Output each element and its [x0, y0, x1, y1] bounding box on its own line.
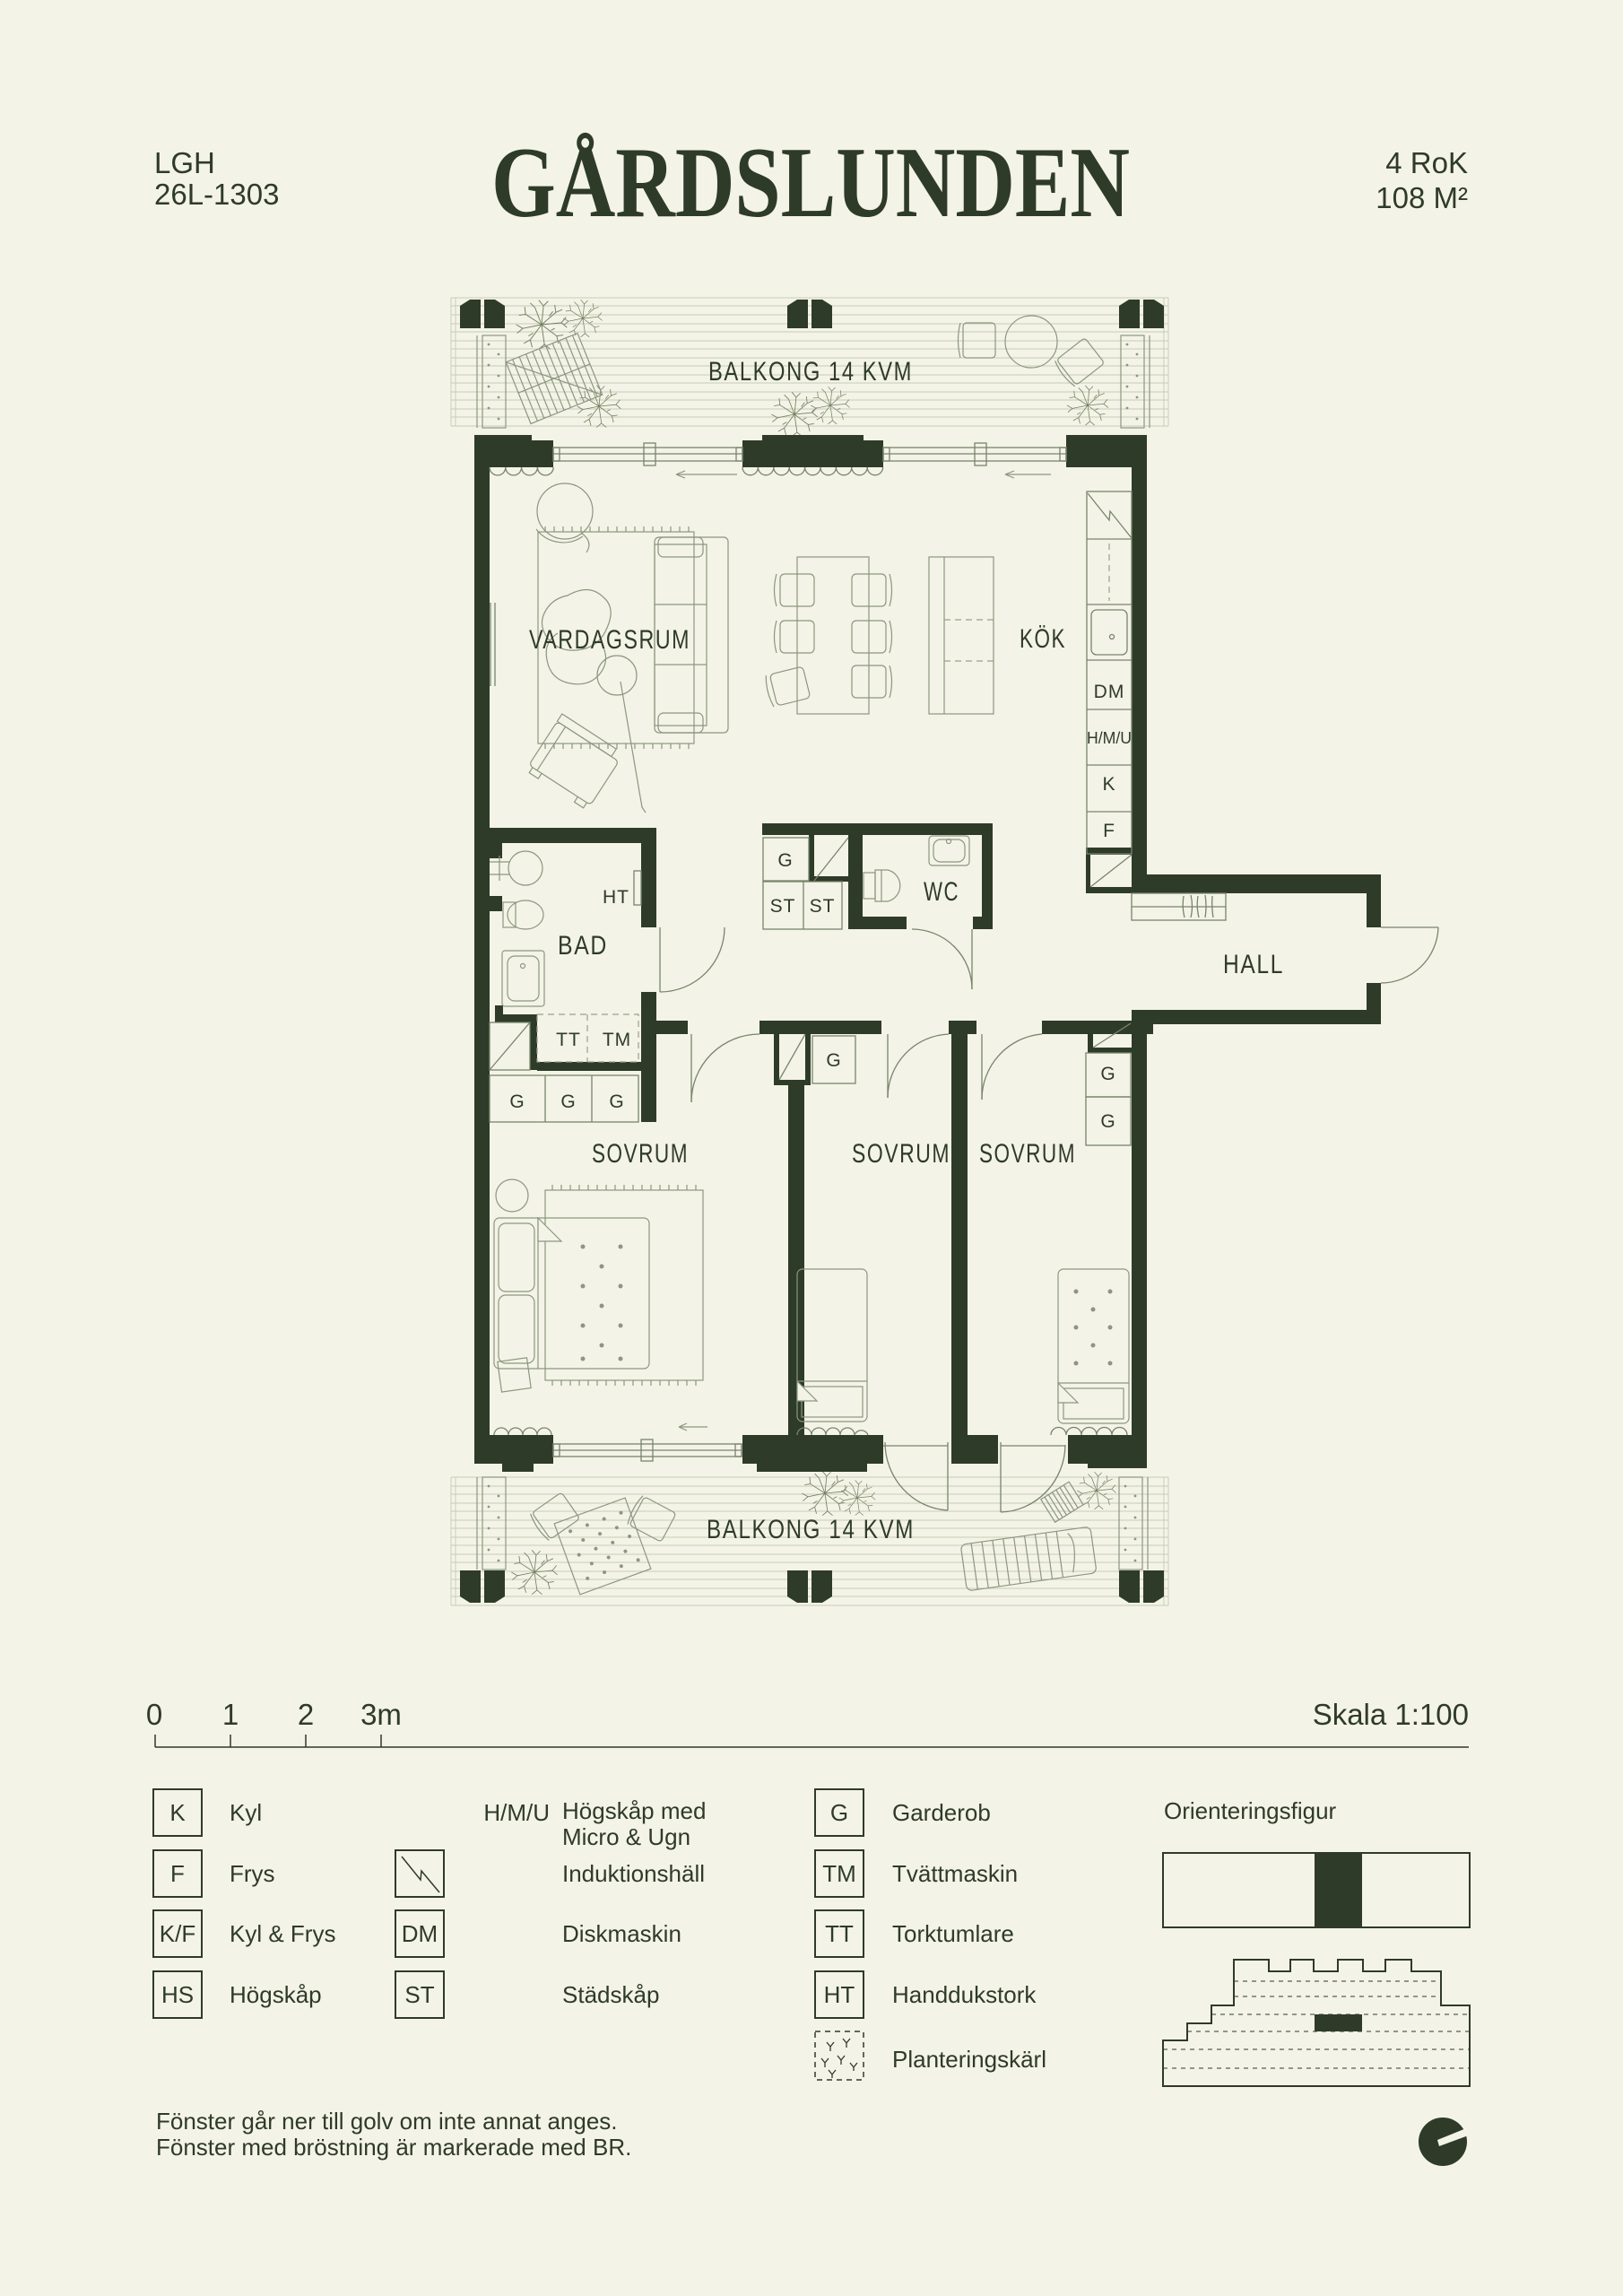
svg-text:DM: DM	[402, 1920, 438, 1947]
svg-text:G: G	[826, 1050, 841, 1071]
svg-text:26L-1303: 26L-1303	[154, 178, 279, 211]
svg-text:TM: TM	[603, 1030, 631, 1050]
svg-text:DM: DM	[1094, 682, 1125, 702]
svg-text:WC: WC	[924, 877, 959, 907]
svg-text:H/M/U: H/M/U	[1087, 729, 1132, 747]
svg-text:Skala 1:100: Skala 1:100	[1313, 1698, 1469, 1731]
svg-text:K/F: K/F	[160, 1920, 195, 1947]
svg-text:KÖK: KÖK	[1020, 624, 1066, 654]
svg-text:1: 1	[222, 1698, 239, 1731]
svg-text:G: G	[560, 1091, 576, 1112]
svg-text:LGH: LGH	[154, 146, 215, 179]
svg-text:K: K	[169, 1799, 186, 1826]
svg-text:G: G	[509, 1091, 525, 1112]
svg-text:HT: HT	[824, 1981, 855, 2008]
svg-text:ST: ST	[810, 896, 836, 917]
svg-text:Städskåp: Städskåp	[562, 1981, 659, 2008]
svg-text:Torktumlare: Torktumlare	[892, 1920, 1014, 1947]
svg-text:TM: TM	[822, 1860, 856, 1887]
svg-text:F: F	[1103, 821, 1115, 841]
svg-text:VARDAGSRUM: VARDAGSRUM	[529, 625, 690, 655]
svg-text:HALL: HALL	[1223, 950, 1284, 979]
svg-text:Kyl: Kyl	[230, 1799, 262, 1826]
svg-text:Tvättmaskin: Tvättmaskin	[892, 1860, 1018, 1887]
svg-text:Fönster går ner till golv om i: Fönster går ner till golv om inte annat …	[156, 2108, 618, 2135]
svg-text:3m: 3m	[360, 1698, 402, 1731]
svg-text:0: 0	[146, 1698, 162, 1731]
svg-text:G: G	[1100, 1064, 1115, 1084]
svg-text:Högskåp med: Högskåp med	[562, 1797, 706, 1824]
svg-text:Frys: Frys	[230, 1860, 275, 1887]
svg-text:TT: TT	[556, 1030, 581, 1050]
svg-text:SOVRUM: SOVRUM	[979, 1139, 1076, 1169]
svg-text:Handdukstork: Handdukstork	[892, 1981, 1037, 2008]
svg-text:Diskmaskin: Diskmaskin	[562, 1920, 681, 1947]
svg-text:TT: TT	[825, 1920, 854, 1947]
svg-text:H/M/U: H/M/U	[483, 1799, 550, 1826]
svg-text:SOVRUM: SOVRUM	[592, 1139, 689, 1169]
svg-text:HS: HS	[161, 1981, 194, 2008]
svg-text:2: 2	[298, 1698, 314, 1731]
svg-text:G: G	[609, 1091, 624, 1112]
svg-text:G: G	[777, 850, 793, 871]
svg-text:BALKONG 14 KVM: BALKONG 14 KVM	[707, 1515, 915, 1544]
svg-text:ST: ST	[770, 896, 796, 917]
svg-text:Orienteringsfigur: Orienteringsfigur	[1164, 1797, 1337, 1824]
svg-text:Induktionshäll: Induktionshäll	[562, 1860, 705, 1887]
svg-text:Högskåp: Högskåp	[230, 1981, 322, 2008]
svg-text:ST: ST	[404, 1981, 434, 2008]
svg-text:F: F	[170, 1860, 185, 1887]
svg-text:SOVRUM: SOVRUM	[852, 1139, 950, 1169]
svg-text:GÅRDSLUNDEN: GÅRDSLUNDEN	[491, 127, 1130, 239]
svg-text:Micro & Ugn: Micro & Ugn	[562, 1823, 690, 1850]
svg-text:BALKONG 14 KVM: BALKONG 14 KVM	[708, 357, 913, 387]
svg-text:G: G	[1100, 1111, 1115, 1132]
svg-text:BAD: BAD	[558, 931, 608, 961]
svg-text:Garderob: Garderob	[892, 1799, 991, 1826]
svg-text:4 RoK: 4 RoK	[1385, 146, 1468, 179]
svg-text:Fönster med bröstning är marke: Fönster med bröstning är markerade med B…	[156, 2134, 631, 2161]
svg-text:G: G	[830, 1799, 848, 1826]
svg-text:HT: HT	[603, 887, 629, 908]
svg-text:Planteringskärl: Planteringskärl	[892, 2046, 1046, 2073]
svg-text:108 M²: 108 M²	[1376, 181, 1468, 214]
svg-text:K: K	[1102, 774, 1115, 795]
svg-text:Kyl & Frys: Kyl & Frys	[230, 1920, 335, 1947]
